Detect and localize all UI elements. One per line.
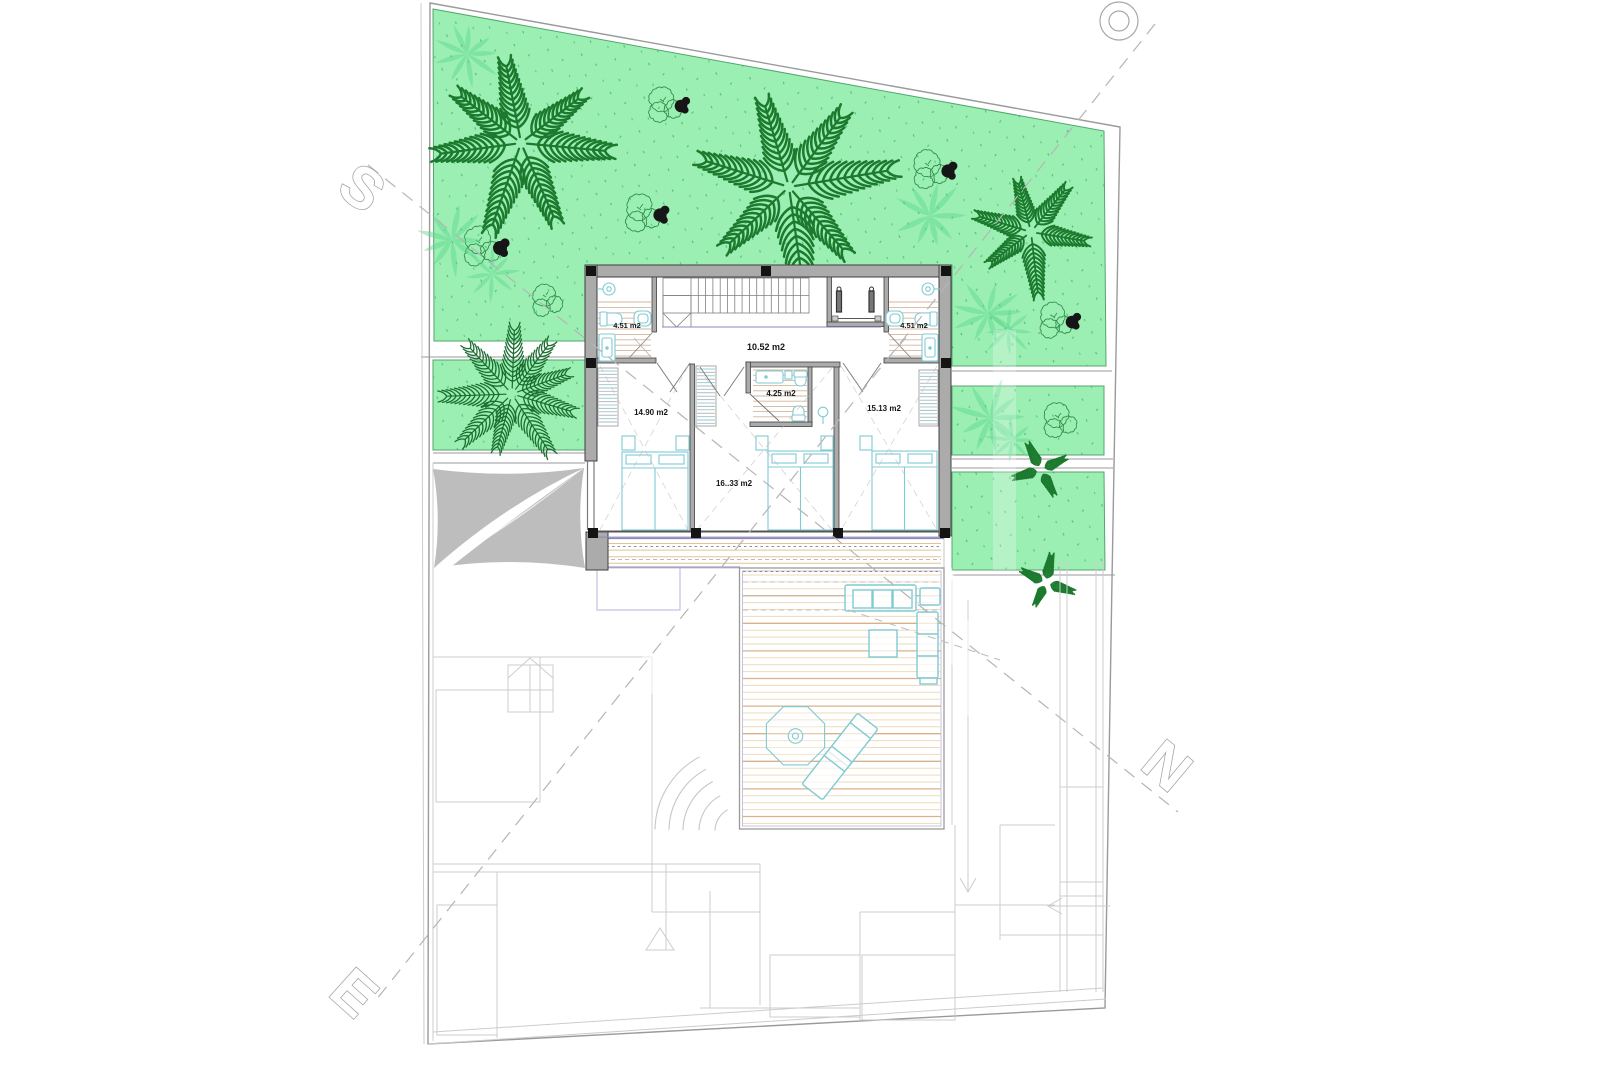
svg-text:4.51 m2: 4.51 m2 bbox=[613, 321, 641, 330]
svg-text:14.90 m2: 14.90 m2 bbox=[634, 408, 668, 417]
svg-text:10.52 m2: 10.52 m2 bbox=[747, 342, 785, 352]
svg-text:16..33 m2: 16..33 m2 bbox=[716, 479, 753, 488]
svg-text:15.13 m2: 15.13 m2 bbox=[867, 404, 901, 413]
svg-text:4.25 m2: 4.25 m2 bbox=[766, 389, 796, 398]
